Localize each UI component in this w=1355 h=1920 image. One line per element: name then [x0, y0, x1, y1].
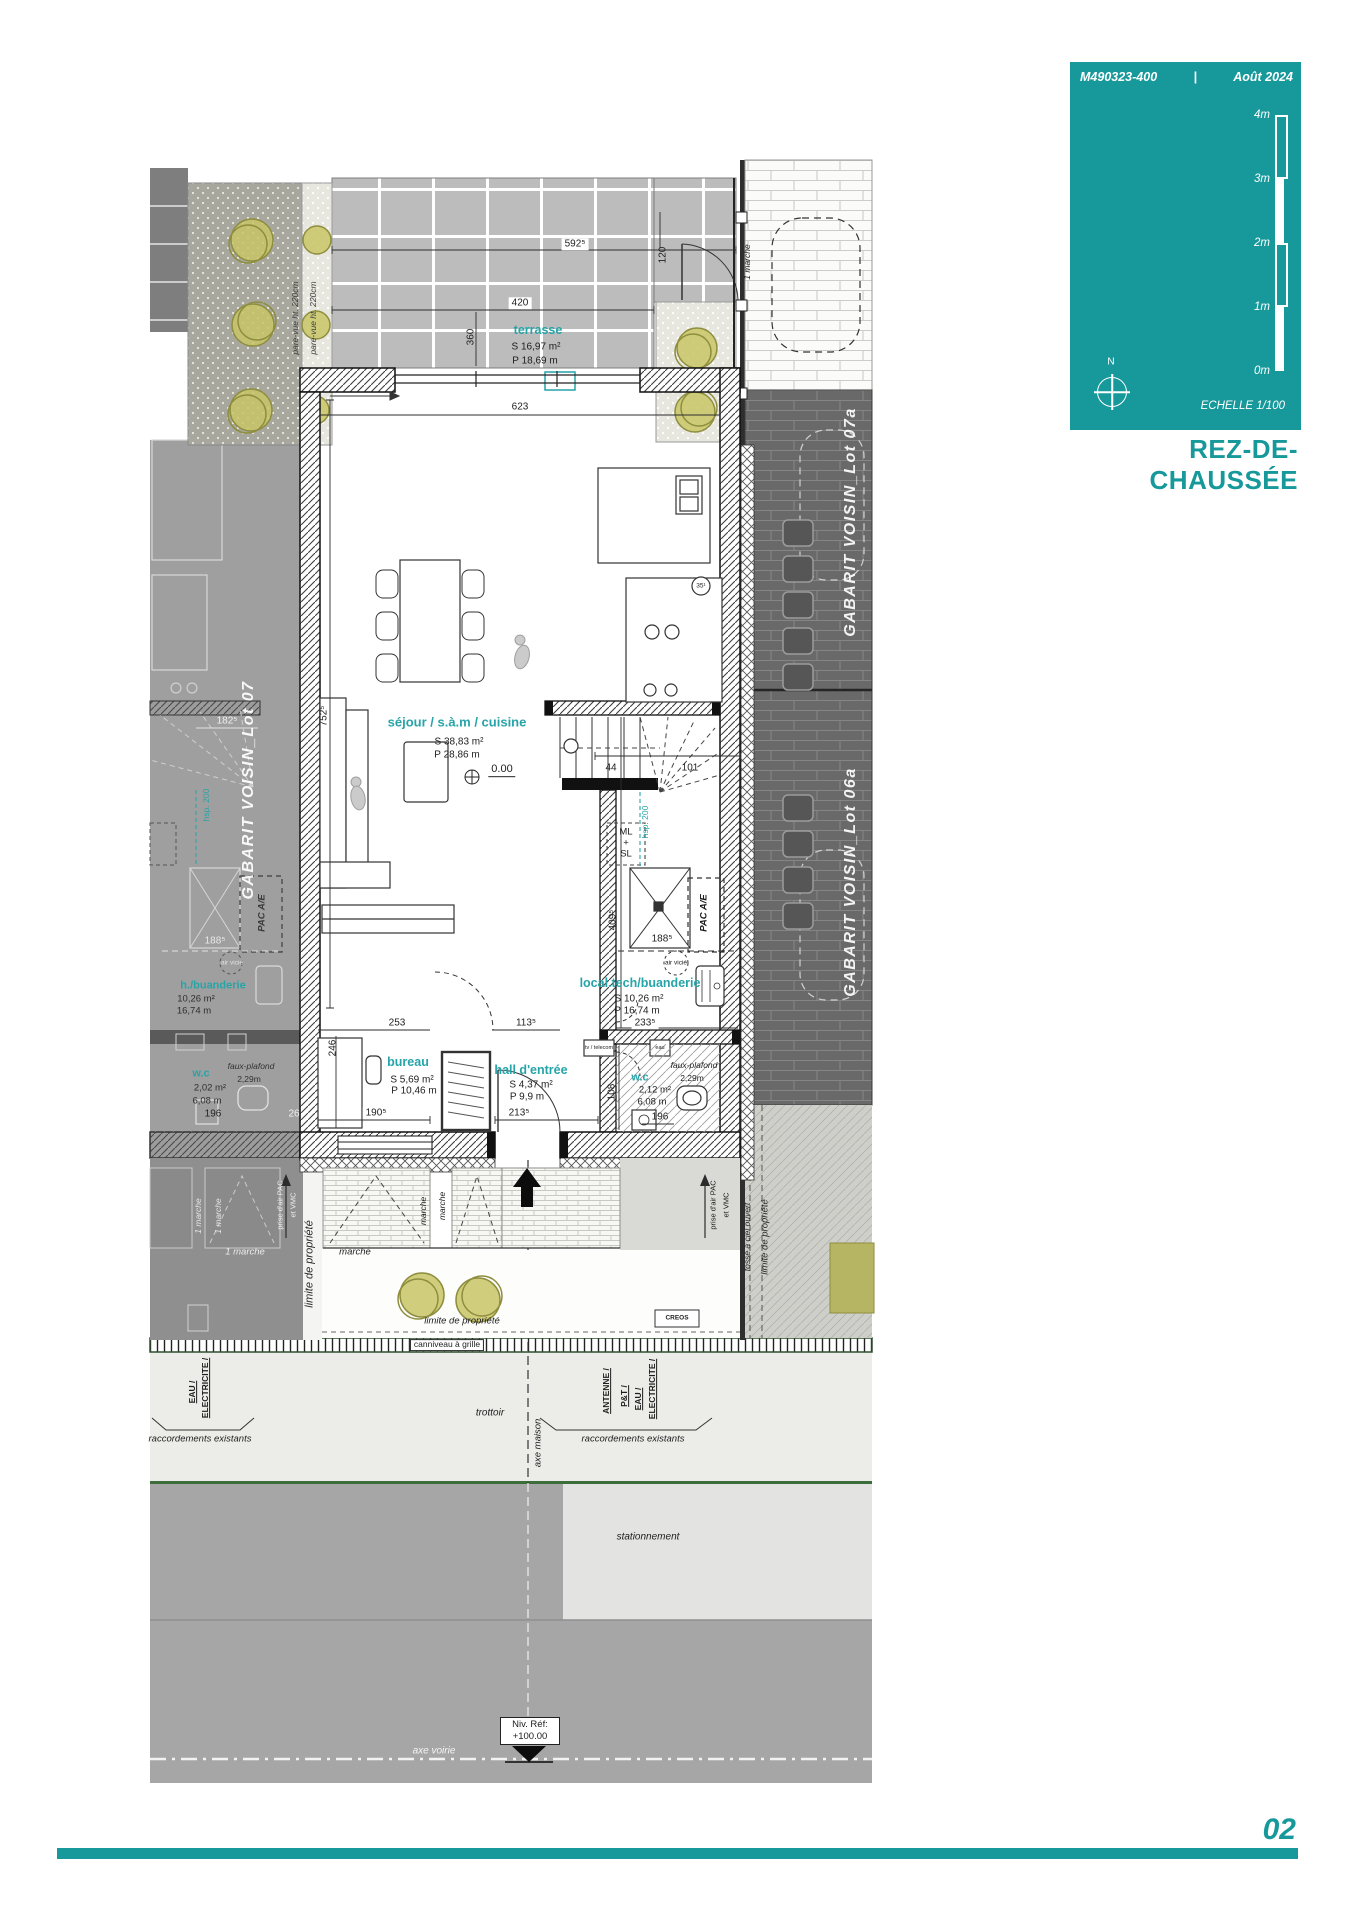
prise-air-right-1: prise d'air PAC [710, 1180, 719, 1229]
dim-26: 26 [288, 1108, 299, 1120]
entry-garden [322, 1158, 740, 1338]
marche-label-terrace: 1 marche [743, 244, 753, 279]
niv-ref-box: Niv. Réf: +100.00 [500, 1717, 560, 1745]
faux-plafond-left: faux-plafond [228, 1062, 275, 1072]
dim-101: 101 [682, 762, 699, 774]
pare-vue-label-2: pare-vue ht. 220cm [309, 281, 319, 354]
room-terrasse-area: S 16,97 m² [512, 341, 561, 353]
dim-113: 113⁵ [513, 1017, 539, 1029]
title-block: M490323-400 | Août 2024 4m 3m 2m 1m 0m N… [1070, 62, 1301, 430]
room-bureau-area: S 5,69 m² [390, 1074, 433, 1086]
room-wc-area: 2,12 m² [639, 1086, 671, 1097]
dim-182-left: 182⁵ [217, 715, 238, 727]
ref-date-separator: | [1193, 70, 1197, 84]
limite-propriete-right: limite de propriété [761, 1199, 772, 1275]
room-wc-left-area: 2,02 m² [194, 1084, 226, 1095]
room-hall-name: hall d'entrée [494, 1063, 567, 1077]
room-wc-perimeter: 6,08 m [637, 1098, 666, 1109]
dim-592: 592⁵ [562, 238, 589, 250]
pac-label-right: PAC A/E [700, 894, 711, 931]
project-date: Août 2024 [1233, 70, 1293, 84]
room-hall-perimeter: P 9,9 m [510, 1091, 544, 1103]
axe-maison-label: axe maison [534, 1419, 545, 1468]
stairs [560, 717, 720, 866]
stationnement-label: stationnement [617, 1531, 680, 1543]
faux-plafond-h-right: 2,29m [680, 1074, 704, 1084]
niv-ref-value: +100.00 [501, 1731, 559, 1743]
dim-188-left: 188⁵ [205, 935, 226, 947]
project-ref: M490323-400 [1080, 70, 1157, 84]
plan-page: pare-vue ht. 220cm pare-vue ht. 220cm te… [0, 0, 1355, 1920]
dim-120: 120 [657, 247, 669, 264]
room-wc-left-name: w.c [192, 1068, 209, 1081]
gabarit-lot06a-label: GABARIT VOISIN_Lot 06a [842, 767, 860, 996]
pac-label-left: PAC A/E [258, 894, 269, 931]
scale-mark-1m: 1m [1254, 301, 1270, 313]
faux-plafond-h-left: 2,29m [237, 1075, 261, 1085]
dim-233: 233⁵ [632, 1017, 659, 1029]
dim-190: 190⁵ [363, 1107, 390, 1119]
eau-box-label: eau [655, 1045, 664, 1051]
marche-center: marche [339, 1248, 371, 1259]
marche-rot-b: marche [438, 1192, 448, 1220]
gabarit-lot07a-label: GABARIT VOISIN_Lot 07a [842, 407, 860, 636]
raccordements-right: raccordements existants [582, 1435, 685, 1446]
scale-mark-2m: 2m [1254, 237, 1270, 249]
tv-telecom-box-label: tv / telecom [585, 1045, 613, 1051]
limite-propriete-center: limite de propriété [424, 1317, 500, 1328]
scale-mark-0m: 0m [1254, 365, 1270, 377]
prise-air-right-2: et VMC [723, 1192, 732, 1217]
limite-propriete-left: limite de propriété [304, 1220, 317, 1307]
footer-accent-bar [57, 1848, 1298, 1859]
scale-bar-segment-1-0 [1275, 307, 1284, 371]
scale-text: ECHELLE 1/100 [1201, 400, 1285, 412]
room-localtech-name: local.tech/buanderie [580, 976, 701, 990]
dim-196-right: 196 [652, 1111, 669, 1123]
north-compass-icon [1097, 377, 1127, 407]
niv-ref-label: Niv. Réf: [501, 1719, 559, 1731]
north-label: N [1107, 357, 1114, 368]
dim-188-right: 188⁵ [652, 933, 673, 945]
page-number: 02 [1263, 1813, 1296, 1847]
util-left-eau: EAU / [188, 1381, 198, 1404]
dim-253: 253 [386, 1017, 409, 1029]
room-buanderie-left-area: 10,26 m² [177, 995, 215, 1006]
dim-213: 213⁵ [506, 1107, 533, 1119]
room-wc-left-perimeter: 6,08 m [192, 1097, 221, 1108]
room-localtech-area: S 10,26 m² [615, 993, 664, 1005]
room-buanderie-left-perimeter: 16,74 m [177, 1007, 211, 1018]
scale-mark-3m: 3m [1254, 173, 1270, 185]
room-bureau-perimeter: P 10,46 m [391, 1085, 436, 1097]
room-localtech-perimeter: P 16,74 m [614, 1005, 659, 1017]
dim-752: 752⁵ [318, 706, 330, 727]
dim-44: 44 [605, 762, 616, 774]
right-neighbor [736, 160, 874, 1340]
marche1-left-c: 1 marche [225, 1248, 265, 1259]
dim-196-left: 196 [205, 1108, 222, 1120]
trottoir-label: trottoir [476, 1407, 504, 1419]
dim-246: 246 [327, 1040, 339, 1057]
room-wc-name: w.c [631, 1072, 648, 1085]
dim-409: 409⁵ [607, 910, 619, 931]
dim-420: 420 [509, 297, 532, 309]
prise-air-left-2: et VMC [290, 1192, 299, 1217]
dim-35-hob: 35¹ [696, 582, 705, 589]
room-sejour-name: séjour / s.à.m / cuisine [388, 716, 527, 731]
util-right-electricite: ELECTRICITE / [648, 1359, 658, 1419]
util-right-antenne: ANTENNE / [602, 1368, 612, 1414]
fosse-label: fossé à ciel ouvert [743, 1203, 753, 1272]
scale-bar-segment-3-2 [1275, 179, 1284, 243]
raccordements-left: raccordements existants [149, 1435, 252, 1446]
room-sejour-area: S 38,83 m² [435, 736, 484, 748]
util-left-electricite: ELECTRICITE / [201, 1358, 211, 1418]
room-terrasse-perimeter: P 18,69 m [512, 355, 557, 367]
terrace [188, 178, 738, 445]
scale-mark-4m: 4m [1254, 109, 1270, 121]
room-terrasse-name: terrasse [514, 323, 563, 337]
canniveau-label: canniveau à grille [410, 1339, 484, 1351]
prise-air-left-1: prise d'air PAC [277, 1180, 286, 1229]
util-right-pt: P&T / [620, 1385, 630, 1407]
hsp-200-left: hsp. 200 [202, 789, 212, 822]
title-block-row: M490323-400 | Août 2024 [1080, 70, 1293, 84]
room-buanderie-left-name: h./buanderie [180, 980, 245, 993]
dim-623: 623 [509, 401, 532, 413]
faux-plafond-right: faux-plafond [671, 1061, 718, 1071]
scale-bar-segment-2-1 [1275, 243, 1288, 307]
room-sejour-perimeter: P 28,86 m [434, 749, 479, 761]
gabarit-lot07-label: GABARIT VOISIN_Lot 07 [240, 680, 258, 899]
room-bureau-name: bureau [387, 1055, 429, 1069]
creos-box-label: CREOS [665, 1314, 688, 1321]
level-zero-label: 0.00 [488, 763, 515, 777]
doors [330, 392, 640, 1132]
air-vicie-right: air vicié [665, 959, 687, 966]
pare-vue-label-1: pare-vue ht. 220cm [291, 281, 301, 354]
marche1-left-a: 1 marche [194, 1198, 204, 1233]
air-vicie-left: air vicié [221, 959, 243, 966]
room-hall-area: S 4,37 m² [509, 1079, 552, 1091]
dim-108: 108 [606, 1084, 618, 1101]
util-right-eau: EAU / [634, 1388, 644, 1411]
page-title: REZ-DE-CHAUSSÉE [1070, 434, 1298, 496]
dim-360: 360 [465, 329, 477, 346]
marche-rot-a: marche [419, 1197, 429, 1225]
marche1-left-b: 1 marche [214, 1198, 224, 1233]
sl-label: SL [620, 850, 632, 861]
level-marker [465, 770, 479, 784]
hsp-200-right: hsp. 200 [641, 806, 651, 839]
scale-bar-segment-4-3 [1275, 115, 1288, 179]
axe-voirie-label: axe voirie [413, 1745, 456, 1757]
